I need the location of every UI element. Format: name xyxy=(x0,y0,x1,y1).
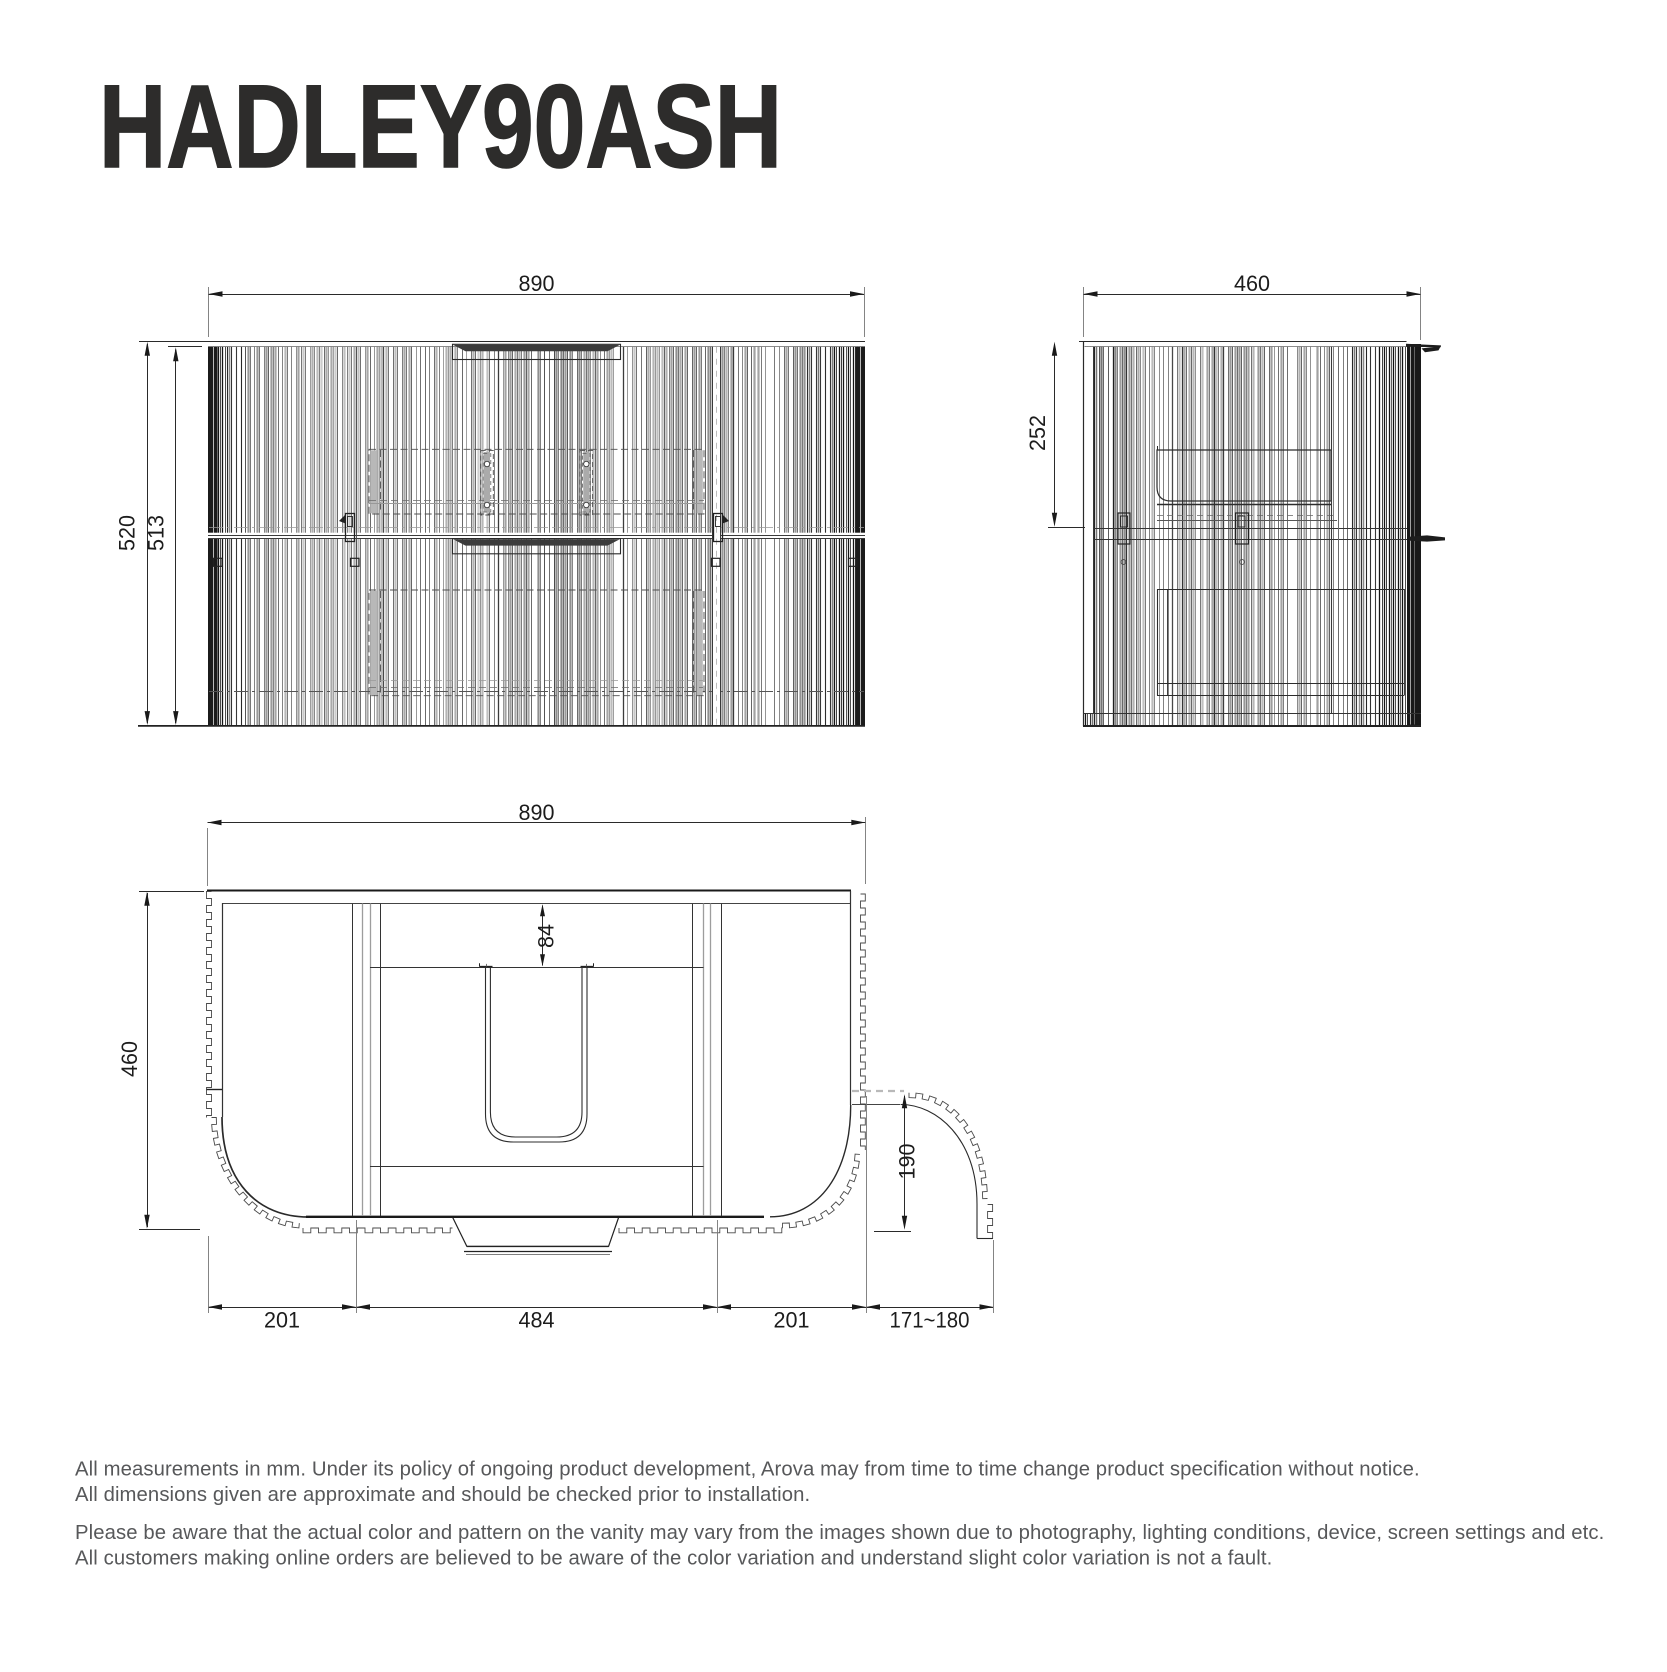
svg-text:HADLEY90ASH: HADLEY90ASH xyxy=(99,61,782,193)
svg-text:460: 460 xyxy=(1234,271,1270,296)
svg-text:513: 513 xyxy=(144,515,169,551)
svg-text:171~180: 171~180 xyxy=(890,1308,970,1333)
svg-text:84: 84 xyxy=(534,924,559,948)
svg-text:890: 890 xyxy=(519,800,555,825)
svg-text:201: 201 xyxy=(264,1308,300,1333)
svg-text:Please be aware that the actua: Please be aware that the actual color an… xyxy=(75,1522,1604,1544)
svg-text:484: 484 xyxy=(519,1308,555,1333)
svg-text:890: 890 xyxy=(519,271,555,296)
svg-text:All customers making online or: All customers making online orders are b… xyxy=(75,1548,1272,1570)
svg-text:460: 460 xyxy=(117,1041,142,1077)
svg-text:190: 190 xyxy=(895,1144,920,1180)
svg-text:252: 252 xyxy=(1025,415,1050,451)
svg-text:All measurements in mm. Under: All measurements in mm. Under its policy… xyxy=(75,1459,1420,1481)
svg-text:All dimensions given are appro: All dimensions given are approximate and… xyxy=(75,1484,810,1506)
svg-text:201: 201 xyxy=(774,1308,810,1333)
svg-text:520: 520 xyxy=(115,515,140,551)
